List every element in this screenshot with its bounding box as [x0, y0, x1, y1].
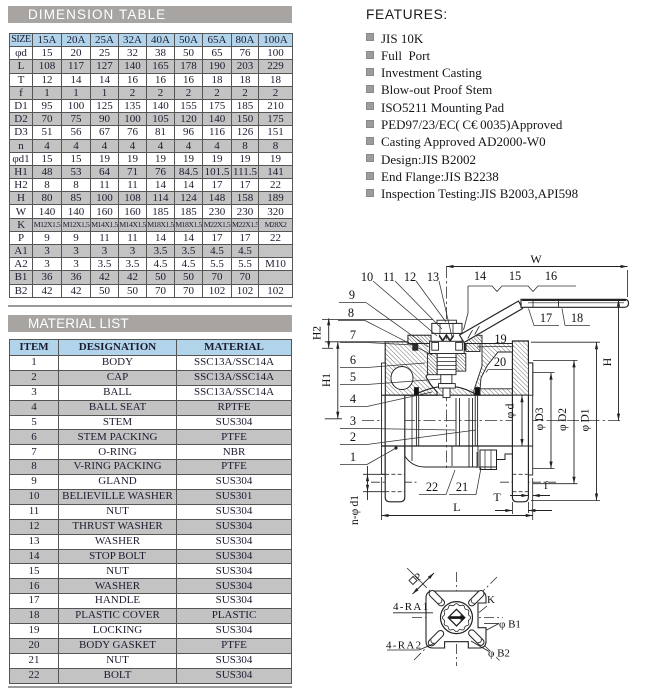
svg-text:1: 1 [350, 450, 356, 464]
svg-text:5: 5 [350, 370, 356, 384]
svg-text:T: T [493, 490, 501, 504]
svg-text:3: 3 [350, 414, 356, 428]
svg-text:20: 20 [494, 355, 506, 369]
svg-text:7: 7 [350, 328, 356, 342]
svg-text:22: 22 [426, 480, 438, 494]
svg-text:H2: H2 [312, 326, 324, 340]
svg-text:K: K [487, 594, 495, 606]
svg-text:9: 9 [349, 288, 355, 302]
svg-text:17: 17 [540, 311, 552, 325]
svg-text:10: 10 [361, 270, 373, 284]
svg-text:16: 16 [545, 269, 557, 283]
svg-text:φ B2: φ B2 [488, 648, 510, 660]
svg-text:4-RA1: 4-RA1 [393, 601, 429, 613]
svg-text:L: L [453, 500, 460, 514]
svg-text:H1: H1 [321, 373, 333, 387]
svg-text:14: 14 [474, 269, 486, 283]
svg-text:15: 15 [509, 269, 521, 283]
svg-text:8: 8 [348, 306, 354, 320]
svg-text:φ D3: φ D3 [534, 407, 546, 430]
svg-text:W: W [530, 252, 542, 266]
svg-text:n-φ d1: n-φ d1 [349, 495, 361, 525]
svg-text:11: 11 [383, 270, 395, 284]
svg-text:φ D2: φ D2 [557, 408, 569, 431]
svg-text:P: P [412, 571, 425, 584]
svg-text:2: 2 [350, 430, 356, 444]
svg-text:φ B1: φ B1 [499, 619, 521, 631]
svg-text:6: 6 [350, 353, 356, 367]
svg-text:f: f [544, 478, 548, 492]
svg-text:12: 12 [404, 270, 416, 284]
svg-text:21: 21 [456, 480, 468, 494]
svg-text:φ D1: φ D1 [580, 408, 592, 431]
svg-text:18: 18 [571, 311, 583, 325]
svg-text:4: 4 [350, 392, 356, 406]
svg-text:φ d: φ d [505, 403, 517, 418]
svg-text:19: 19 [494, 332, 506, 346]
svg-text:13: 13 [427, 270, 439, 284]
svg-text:H: H [600, 357, 614, 366]
